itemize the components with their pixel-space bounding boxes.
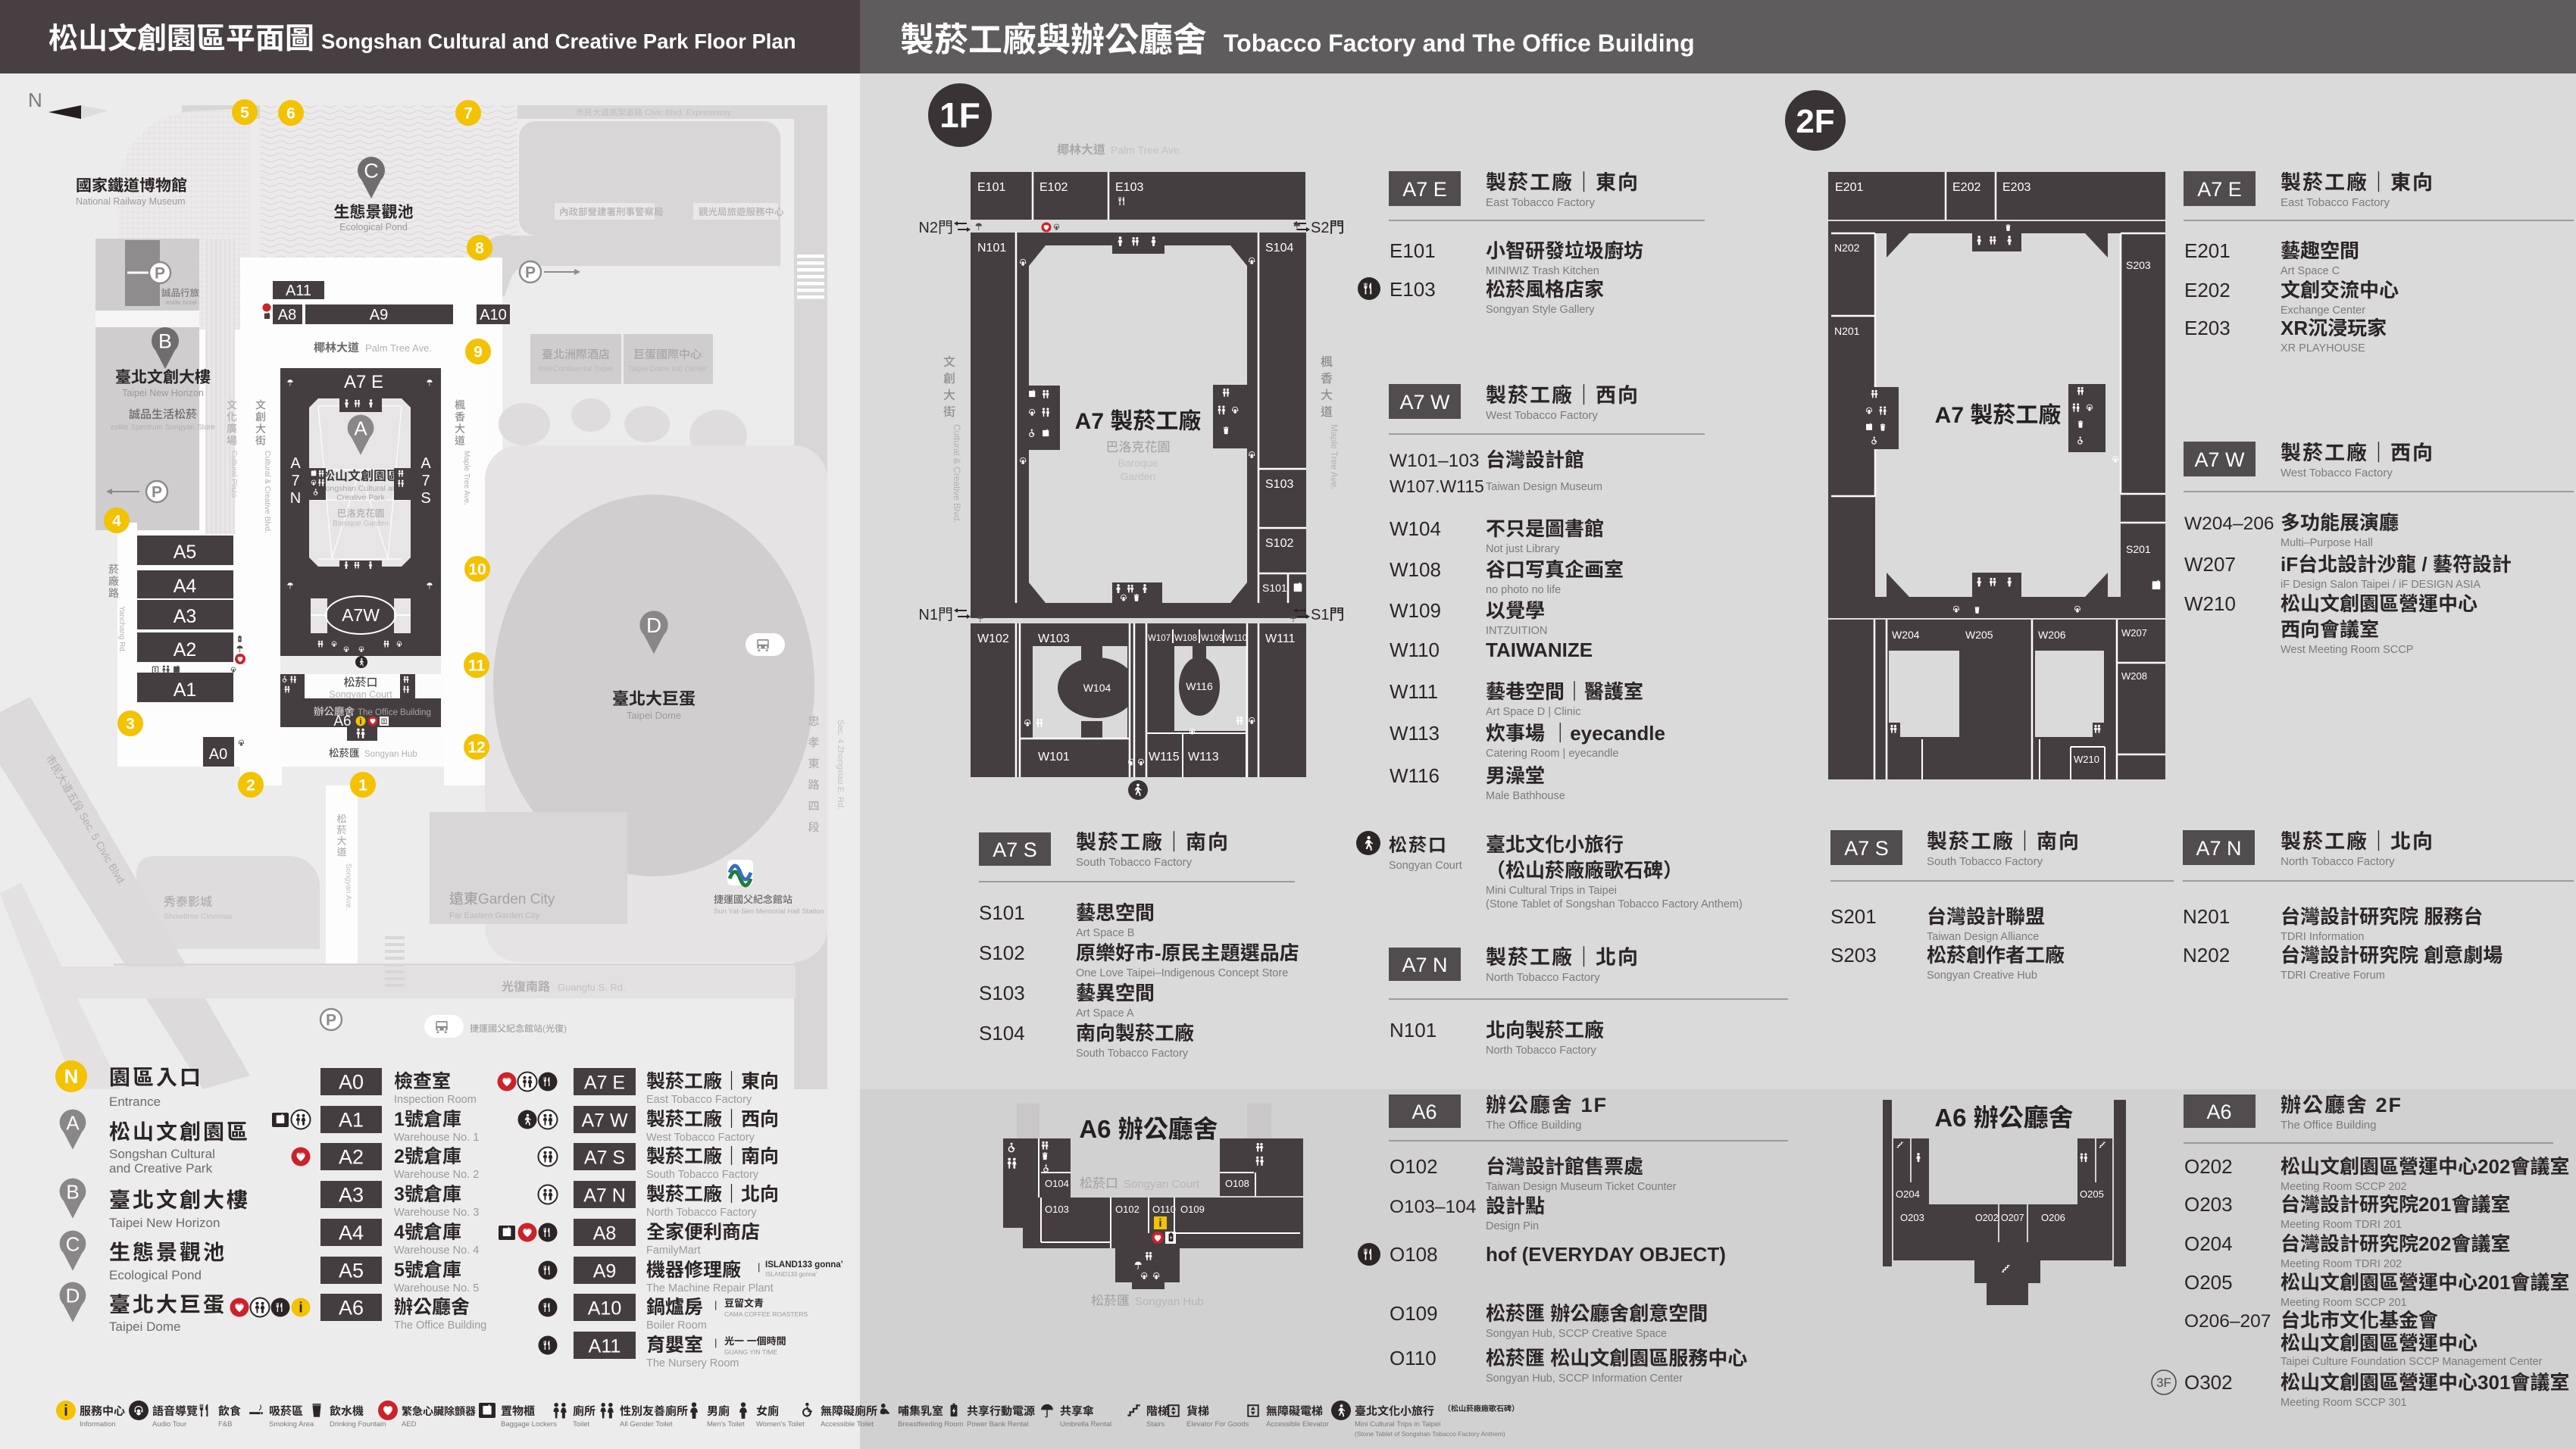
svg-text:P: P	[155, 264, 165, 282]
svg-text:S2: S2	[1311, 220, 1329, 236]
svg-text:eslite Spectrum Songyan Store: eslite Spectrum Songyan Store	[111, 423, 215, 432]
svg-text:9: 9	[474, 344, 483, 361]
svg-text:Creative Park: Creative Park	[336, 493, 385, 502]
svg-text:AED: AED	[523, 1227, 533, 1232]
svg-text:|: |	[714, 1299, 717, 1310]
svg-text:A10: A10	[588, 1298, 621, 1319]
svg-text:A: A	[290, 455, 301, 472]
svg-text:市民大道高架道路 Civic Blvd. Expressw: 市民大道高架道路 Civic Blvd. Expressway	[576, 107, 731, 117]
svg-text:W210: W210	[2184, 592, 2236, 615]
svg-text:O102: O102	[1115, 1204, 1140, 1215]
svg-text:(Stone Tablet of Songshan Toba: (Stone Tablet of Songshan Tobacco Factor…	[1486, 898, 1743, 910]
svg-text:N201: N201	[2183, 905, 2230, 928]
svg-text:Yanchang Rd.: Yanchang Rd.	[117, 606, 126, 654]
svg-text:Songyan Hub, SCCP Information: Songyan Hub, SCCP Information Center	[1486, 1372, 1683, 1385]
svg-text:O302: O302	[2184, 1371, 2233, 1394]
svg-text:W101: W101	[1038, 751, 1070, 764]
svg-text:W103: W103	[1038, 632, 1070, 645]
svg-text:A6: A6	[333, 714, 351, 729]
svg-text:2: 2	[246, 777, 255, 795]
svg-text:O104: O104	[1045, 1178, 1069, 1189]
svg-text:National Railway Museum: National Railway Museum	[76, 196, 186, 207]
svg-text:N202: N202	[1834, 242, 1860, 254]
svg-text:i: i	[359, 717, 361, 726]
svg-text:D: D	[66, 1285, 80, 1307]
svg-text:Taipei Dome Intl Center: Taipei Dome Intl Center	[628, 365, 708, 373]
svg-text:InterContinental Taipei: InterContinental Taipei	[538, 365, 613, 373]
svg-text:A7 N: A7 N	[1402, 954, 1447, 976]
svg-text:Baroque: Baroque	[1118, 457, 1158, 469]
svg-text:E101: E101	[977, 181, 1005, 194]
svg-text:Songyan Hub: Songyan Hub	[1135, 1295, 1204, 1308]
svg-text:N101: N101	[977, 242, 1006, 255]
svg-text:W113: W113	[1188, 751, 1219, 764]
svg-text:Meeting Room SCCP 301: Meeting Room SCCP 301	[2281, 1397, 2407, 1409]
svg-text:W101–103: W101–103	[1390, 451, 1480, 471]
svg-text:Inspection Room: Inspection Room	[394, 1094, 477, 1106]
svg-text:O205: O205	[2184, 1271, 2233, 1294]
svg-text:W107.W115: W107.W115	[1390, 476, 1484, 496]
svg-text:2F: 2F	[1796, 103, 1834, 140]
svg-text:All Gender Toilet: All Gender Toilet	[620, 1420, 673, 1429]
svg-text:A7 N: A7 N	[583, 1185, 626, 1207]
svg-text:Showtime Cinemas: Showtime Cinemas	[164, 912, 232, 921]
svg-text:E103: E103	[1115, 181, 1143, 194]
svg-text:eslite hotel: eslite hotel	[166, 298, 197, 306]
svg-text:O204: O204	[2184, 1232, 2233, 1255]
svg-text:XR PLAYHOUSE: XR PLAYHOUSE	[2281, 342, 2365, 354]
svg-text:A5: A5	[174, 542, 197, 563]
svg-text:Power Bank Rental: Power Bank Rental	[967, 1420, 1028, 1429]
svg-text:East Tobacco Factory: East Tobacco Factory	[1486, 196, 1595, 209]
svg-text:N: N	[28, 89, 42, 111]
svg-text:O204: O204	[1896, 1188, 1920, 1200]
svg-text:S203: S203	[1830, 944, 1877, 967]
svg-text:FamilyMart: FamilyMart	[646, 1244, 701, 1257]
svg-text:W108: W108	[1390, 558, 1441, 581]
svg-text:W109: W109	[1201, 634, 1224, 643]
svg-text:O109: O109	[1180, 1204, 1205, 1215]
svg-text:1F: 1F	[939, 95, 980, 135]
svg-text:5: 5	[240, 105, 249, 122]
svg-text:Smoking Area: Smoking Area	[269, 1420, 314, 1429]
svg-text:East Tobacco Factory: East Tobacco Factory	[646, 1094, 752, 1106]
svg-text:and Creative Park: and Creative Park	[109, 1161, 213, 1176]
svg-text:W210: W210	[2074, 754, 2099, 765]
svg-text:Not just Library: Not just Library	[1486, 543, 1560, 555]
svg-text:Baggage Lockers: Baggage Lockers	[501, 1420, 557, 1429]
svg-text:W115: W115	[1149, 751, 1180, 764]
svg-text:A7: A7	[1935, 403, 1964, 428]
svg-text:Male Bathhouse: Male Bathhouse	[1486, 790, 1565, 802]
svg-text:South Tobacco Factory: South Tobacco Factory	[646, 1169, 759, 1181]
svg-text:A7 S: A7 S	[584, 1148, 625, 1169]
svg-text:A7 W: A7 W	[581, 1110, 628, 1132]
svg-text:Elevator For Goods: Elevator For Goods	[1186, 1420, 1249, 1429]
svg-text:The Nursery Room: The Nursery Room	[646, 1357, 739, 1369]
svg-text:O203: O203	[1900, 1212, 1924, 1223]
svg-text:Far Eastern Garden City: Far Eastern Garden City	[449, 911, 540, 920]
svg-text:A8: A8	[278, 307, 296, 323]
svg-text:O202: O202	[2184, 1155, 2233, 1178]
svg-text:Taipei Culture Foundation SCCP: Taipei Culture Foundation SCCP Managemen…	[2281, 1356, 2543, 1368]
svg-text:S104: S104	[979, 1022, 1025, 1045]
svg-text:AED: AED	[402, 1420, 417, 1429]
svg-text:A9: A9	[370, 307, 388, 323]
svg-text:Men's Toilet: Men's Toilet	[707, 1420, 745, 1429]
svg-text:O103–104: O103–104	[1390, 1197, 1476, 1217]
svg-text:TDRI Information: TDRI Information	[2281, 931, 2364, 943]
svg-text:Taipei New Horizon: Taipei New Horizon	[122, 388, 204, 398]
svg-text:North Tobacco Factory: North Tobacco Factory	[1486, 971, 1600, 984]
svg-text:3: 3	[394, 1184, 405, 1205]
svg-text:O206–207: O206–207	[2184, 1311, 2271, 1332]
svg-text:7: 7	[464, 105, 473, 123]
svg-text:O108: O108	[1390, 1243, 1438, 1266]
svg-text:N: N	[290, 490, 301, 507]
svg-text:O102: O102	[1390, 1155, 1438, 1178]
svg-text:E201: E201	[1835, 181, 1863, 194]
svg-text:E101: E101	[1390, 239, 1436, 262]
svg-text:Sun Yat-Sen Memorial Hall Stat: Sun Yat-Sen Memorial Hall Station	[714, 907, 824, 916]
svg-text:Warehouse No. 5: Warehouse No. 5	[394, 1282, 479, 1294]
svg-text:4: 4	[112, 513, 121, 530]
svg-text:Songyan Court: Songyan Court	[1389, 860, 1462, 872]
svg-text:Taiwan Design Alliance: Taiwan Design Alliance	[1927, 931, 2039, 943]
svg-text:North Tobacco Factory: North Tobacco Factory	[2281, 855, 2395, 868]
svg-text:1: 1	[358, 777, 367, 795]
svg-text:N: N	[64, 1065, 79, 1088]
svg-text:Sec. 4 Zhongxiao E. Rd.: Sec. 4 Zhongxiao E. Rd.	[836, 720, 845, 810]
svg-text:W111: W111	[1265, 632, 1296, 645]
svg-text:A0: A0	[209, 746, 227, 763]
svg-text:A0: A0	[339, 1071, 364, 1094]
svg-text:A7 W: A7 W	[2194, 448, 2245, 471]
svg-text:7: 7	[291, 473, 299, 489]
svg-text:Maple Tree Ave.: Maple Tree Ave.	[1329, 424, 1340, 490]
svg-text:W107: W107	[1148, 634, 1171, 643]
svg-text:W110: W110	[1390, 639, 1440, 661]
svg-text:TDRI Creative Forum: TDRI Creative Forum	[2281, 970, 2385, 982]
svg-text:A1: A1	[174, 679, 197, 701]
svg-text:(: (	[542, 1023, 546, 1034]
svg-text:N2門: N2門	[918, 220, 953, 236]
svg-text:Cultural & Creative Blvd.: Cultural & Creative Blvd.	[263, 451, 271, 533]
svg-text:North Tobacco Factory: North Tobacco Factory	[1486, 1045, 1596, 1057]
svg-text:O205: O205	[2080, 1188, 2104, 1200]
svg-text:W205: W205	[1965, 629, 1993, 641]
svg-text:Garden: Garden	[1121, 470, 1156, 482]
svg-text:Ecological Pond: Ecological Pond	[109, 1268, 202, 1282]
svg-text:W108: W108	[1174, 634, 1197, 643]
svg-text:N201: N201	[1834, 325, 1860, 337]
svg-text:North Tobacco Factory: North Tobacco Factory	[646, 1207, 757, 1219]
svg-text:Taipei Dome: Taipei Dome	[627, 710, 681, 721]
svg-text:Warehouse No. 1: Warehouse No. 1	[394, 1132, 479, 1144]
svg-text:Palm Tree Ave.: Palm Tree Ave.	[1111, 144, 1183, 156]
svg-text:A: A	[420, 455, 431, 472]
svg-text:11: 11	[468, 657, 486, 675]
svg-text:Taiwan Design Museum Ticket Co: Taiwan Design Museum Ticket Counter	[1486, 1181, 1677, 1193]
svg-text:A2: A2	[339, 1146, 364, 1169]
svg-text:Stairs: Stairs	[1146, 1420, 1165, 1429]
svg-text:GUANG YIN TIME: GUANG YIN TIME	[724, 1348, 777, 1356]
svg-text:O110: O110	[1390, 1347, 1436, 1369]
svg-text:Exchange Center: Exchange Center	[2281, 304, 2365, 317]
svg-text:Audio Tour: Audio Tour	[152, 1420, 186, 1429]
svg-text:): )	[564, 1023, 567, 1034]
svg-text:Songshan Cultural: Songshan Cultural	[109, 1147, 215, 1161]
svg-text:A: A	[354, 418, 367, 439]
svg-text:2F: 2F	[2376, 1094, 2403, 1116]
svg-text:S103: S103	[1265, 478, 1293, 491]
svg-text:O108: O108	[1225, 1178, 1249, 1189]
svg-text:W206: W206	[2038, 629, 2066, 641]
svg-text:Ecological Pond: Ecological Pond	[339, 222, 408, 233]
svg-text:AED: AED	[502, 1076, 512, 1081]
svg-text:Art Space D | Clinic: Art Space D | Clinic	[1486, 706, 1580, 718]
svg-text:C: C	[66, 1234, 80, 1255]
svg-text:O110: O110	[1152, 1204, 1176, 1215]
svg-text:ISLAND133 gonnaʼ: ISLAND133 gonnaʼ	[765, 1271, 818, 1278]
svg-text:D: D	[646, 614, 661, 637]
svg-text:Songyan Creative Hub: Songyan Creative Hub	[1927, 970, 2037, 982]
svg-text:A7 E: A7 E	[1402, 178, 1447, 201]
svg-text:eyecandle: eyecandle	[1570, 722, 1665, 745]
svg-text:W109: W109	[1390, 599, 1441, 622]
svg-text:S101: S101	[979, 901, 1025, 924]
svg-text:Meeting Room SCCP 202: Meeting Room SCCP 202	[2281, 1181, 2407, 1193]
svg-text:1F: 1F	[1581, 1094, 1608, 1116]
svg-text:iF Design Salon Taipei / iF DE: iF Design Salon Taipei / iF DESIGN ASIA	[2281, 579, 2481, 591]
svg-text:201: 201	[2478, 1271, 2510, 1294]
svg-text:E203: E203	[2002, 181, 2030, 194]
svg-text:INTZUITION: INTZUITION	[1486, 625, 1547, 637]
svg-text:E202: E202	[2184, 279, 2231, 301]
svg-text:S103: S103	[979, 982, 1025, 1004]
svg-text:O203: O203	[2184, 1193, 2233, 1216]
svg-text:S102: S102	[1265, 537, 1293, 550]
svg-text:A7 E: A7 E	[2197, 178, 2242, 201]
svg-text:A11: A11	[286, 283, 311, 299]
svg-text:Songyan Hub: Songyan Hub	[364, 750, 417, 759]
svg-text:Garden City: Garden City	[478, 892, 555, 907]
svg-text:W104: W104	[1390, 517, 1441, 540]
svg-text:Taipei New Horizon: Taipei New Horizon	[109, 1216, 220, 1230]
svg-text:Mini Cultural Trips in Taipei: Mini Cultural Trips in Taipei	[1486, 885, 1617, 897]
svg-text:A7 N: A7 N	[2196, 837, 2241, 860]
svg-text:CAMA COFFEE ROASTERS: CAMA COFFEE ROASTERS	[724, 1310, 808, 1318]
svg-text:A9: A9	[593, 1261, 617, 1282]
svg-text:Catering Room | eyecandle: Catering Room | eyecandle	[1486, 748, 1618, 760]
svg-text:One Love Taipei–Indigenous Con: One Love Taipei–Indigenous Concept Store	[1076, 967, 1288, 979]
svg-text:Cultural Plaza: Cultural Plaza	[230, 451, 238, 498]
svg-text:A6: A6	[1079, 1115, 1111, 1143]
svg-text:E202: E202	[1952, 181, 1980, 194]
svg-text:5: 5	[394, 1260, 405, 1281]
svg-text:F&B: F&B	[218, 1420, 232, 1429]
svg-text:12: 12	[467, 739, 485, 757]
svg-text:W207: W207	[2121, 627, 2147, 639]
svg-text:B: B	[158, 330, 172, 353]
svg-text:East Tobacco Factory: East Tobacco Factory	[2281, 196, 2390, 209]
svg-text:Art Space B: Art Space B	[1076, 927, 1134, 939]
svg-text:South Tobacco Factory: South Tobacco Factory	[1076, 1048, 1189, 1060]
svg-text:E203: E203	[2184, 317, 2231, 339]
svg-text:Art Space C: Art Space C	[2281, 265, 2340, 277]
svg-text:Breastfeeding Room: Breastfeeding Room	[898, 1420, 964, 1429]
svg-text:A: A	[66, 1113, 80, 1134]
svg-text:Meeting Room SCCP 201: Meeting Room SCCP 201	[2281, 1297, 2407, 1309]
svg-text:A11: A11	[589, 1336, 621, 1357]
svg-text:2: 2	[394, 1146, 405, 1167]
svg-text:P: P	[525, 264, 536, 281]
svg-text:Toilet: Toilet	[573, 1420, 590, 1429]
svg-text:W111: W111	[1390, 680, 1438, 703]
svg-text:Warehouse No. 4: Warehouse No. 4	[394, 1244, 479, 1257]
svg-text:N202: N202	[2183, 944, 2230, 967]
svg-text:Accessible Toilet: Accessible Toilet	[821, 1420, 874, 1429]
svg-text:W204–206: W204–206	[2184, 514, 2274, 534]
svg-text:O103: O103	[1045, 1204, 1069, 1215]
svg-text:S102: S102	[979, 942, 1025, 964]
svg-text:A7 E: A7 E	[584, 1073, 625, 1094]
svg-text:A10: A10	[480, 307, 507, 323]
svg-text:|: |	[758, 1261, 760, 1273]
svg-text:MINIWIZ Trash Kitchen: MINIWIZ Trash Kitchen	[1486, 265, 1599, 277]
svg-text:301: 301	[2478, 1371, 2510, 1394]
svg-text:|: |	[714, 1337, 717, 1348]
svg-text:Warehouse No. 2: Warehouse No. 2	[394, 1169, 479, 1181]
svg-text:Warehouse No. 3: Warehouse No. 3	[394, 1207, 479, 1219]
svg-text:4: 4	[394, 1222, 405, 1243]
svg-text:10: 10	[468, 561, 486, 579]
svg-text:Meeting Room TDRI 201: Meeting Room TDRI 201	[2281, 1219, 2402, 1231]
svg-text:A7 E: A7 E	[344, 372, 383, 392]
svg-text:Palm Tree Ave.: Palm Tree Ave.	[365, 342, 432, 354]
svg-text:A6: A6	[1411, 1101, 1436, 1123]
svg-text:A2: A2	[174, 639, 197, 660]
svg-text:West Tobacco Factory: West Tobacco Factory	[1486, 409, 1598, 422]
svg-text:Songyan Hub, SCCP Creative Spa: Songyan Hub, SCCP Creative Space	[1486, 1328, 1667, 1340]
svg-text:South Tobacco Factory: South Tobacco Factory	[1927, 855, 2043, 868]
svg-text:AED: AED	[296, 1151, 306, 1156]
svg-text:W116: W116	[1390, 764, 1440, 787]
svg-text:Songshan Cultural and: Songshan Cultural and	[320, 484, 402, 493]
svg-text:Drinking Fountain: Drinking Fountain	[330, 1420, 386, 1429]
svg-text:Accessible Elevator: Accessible Elevator	[1266, 1420, 1329, 1429]
svg-text:A6: A6	[2206, 1101, 2231, 1123]
svg-text:The Office Building: The Office Building	[2281, 1119, 2376, 1132]
svg-text:3F: 3F	[2156, 1376, 2171, 1390]
svg-text:Boiler Room: Boiler Room	[646, 1319, 707, 1332]
svg-text:Taiwan Design Museum: Taiwan Design Museum	[1486, 481, 1602, 493]
svg-text:P: P	[152, 483, 162, 501]
svg-text:Art Space A: Art Space A	[1076, 1007, 1134, 1020]
svg-text:O109: O109	[1390, 1302, 1438, 1325]
svg-text:A6: A6	[1934, 1104, 1966, 1132]
svg-text:Tobacco Factory and The Office: Tobacco Factory and The Office Building	[1224, 30, 1695, 57]
svg-text:W102: W102	[977, 632, 1009, 645]
svg-text:N101: N101	[1390, 1019, 1436, 1041]
svg-text:West Tobacco Factory: West Tobacco Factory	[2281, 467, 2393, 479]
svg-text:W208: W208	[2121, 670, 2147, 682]
svg-text:iF: iF	[2281, 553, 2298, 576]
svg-text:Multi–Purpose Hall: Multi–Purpose Hall	[2281, 537, 2373, 549]
svg-text:/: /	[2421, 553, 2427, 576]
svg-text:A3: A3	[174, 606, 197, 627]
svg-text:no photo no life: no photo no life	[1486, 584, 1561, 596]
svg-text:7: 7	[421, 473, 430, 489]
svg-text:O207: O207	[2001, 1213, 2024, 1223]
svg-text:Women's Toilet: Women's Toilet	[756, 1420, 805, 1429]
svg-text:The Office Building: The Office Building	[358, 708, 431, 717]
svg-text:West Meeting Room SCCP: West Meeting Room SCCP	[2281, 644, 2413, 656]
svg-text:W116: W116	[1186, 680, 1213, 692]
svg-text:W104: W104	[1083, 682, 1111, 694]
svg-text:A7 W: A7 W	[1399, 391, 1450, 414]
svg-text:W207: W207	[2184, 553, 2236, 576]
svg-text:202: 202	[2418, 1232, 2451, 1255]
svg-text:i: i	[64, 1403, 68, 1419]
svg-text:S: S	[420, 490, 430, 507]
svg-text:A4: A4	[339, 1222, 364, 1244]
svg-text:ISLAND133 gonnaʼ: ISLAND133 gonnaʼ	[765, 1260, 843, 1269]
svg-text:Songyan Ave.: Songyan Ave.	[344, 863, 352, 910]
svg-text:A5: A5	[339, 1260, 364, 1282]
svg-text:A7 S: A7 S	[993, 838, 1037, 861]
svg-text:W204: W204	[1892, 629, 1920, 641]
svg-text:TAIWANIZE: TAIWANIZE	[1486, 639, 1593, 661]
svg-text:West Tobacco Factory: West Tobacco Factory	[646, 1132, 755, 1144]
svg-text:Mini Cultural Trips in Taipei: Mini Cultural Trips in Taipei	[1355, 1420, 1440, 1429]
svg-text:E102: E102	[1039, 181, 1068, 194]
svg-text:E201: E201	[2184, 239, 2231, 262]
svg-text:Cultural & Creative Blvd.: Cultural & Creative Blvd.	[952, 424, 962, 523]
svg-text:S1: S1	[1311, 607, 1329, 623]
svg-text:A7 S: A7 S	[1844, 837, 1889, 860]
svg-text:N1門: N1門	[918, 607, 953, 623]
svg-text:AED: AED	[235, 1302, 245, 1307]
svg-text:A3: A3	[339, 1184, 364, 1207]
svg-text:-: -	[1155, 942, 1161, 964]
svg-text:202: 202	[2478, 1155, 2510, 1178]
svg-text:The Office Building: The Office Building	[394, 1319, 486, 1332]
svg-text:Design Pin: Design Pin	[1486, 1220, 1539, 1232]
svg-text:3: 3	[126, 716, 135, 733]
svg-text:Guangfu S. Rd.: Guangfu S. Rd.	[558, 982, 626, 993]
svg-text:W110: W110	[1225, 634, 1247, 643]
svg-text:6: 6	[286, 105, 295, 123]
svg-text:W113: W113	[1390, 722, 1440, 745]
svg-text:Information: Information	[80, 1420, 116, 1429]
svg-text:South Tobacco Factory: South Tobacco Factory	[1076, 856, 1193, 869]
svg-text:Taipei Dome: Taipei Dome	[109, 1319, 181, 1334]
svg-text:201: 201	[2418, 1193, 2451, 1216]
svg-text:Songyan Court: Songyan Court	[1124, 1178, 1200, 1191]
svg-text:8: 8	[475, 240, 484, 258]
svg-text:B: B	[66, 1182, 79, 1203]
svg-text:A7: A7	[1075, 409, 1104, 434]
svg-text:Songshan Cultural and Creative: Songshan Cultural and Creative Park Floo…	[321, 30, 796, 53]
svg-text:S101: S101	[1262, 582, 1287, 594]
svg-text:A7W: A7W	[342, 605, 380, 625]
svg-text:XR: XR	[2281, 317, 2308, 339]
svg-text:The Office Building: The Office Building	[1486, 1119, 1581, 1132]
svg-text:Songyan Style Gallery: Songyan Style Gallery	[1486, 304, 1595, 316]
svg-text:P: P	[326, 1011, 336, 1029]
svg-text:Entrance: Entrance	[109, 1095, 161, 1109]
